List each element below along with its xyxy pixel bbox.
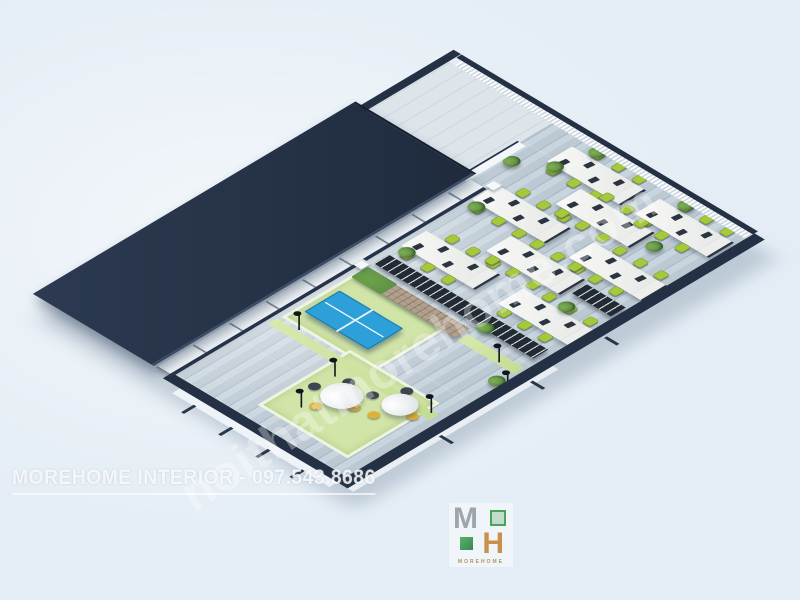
- floor-lamp-pole: [498, 347, 500, 362]
- logo-green-square-icon: [460, 537, 473, 550]
- floor-lamp-pole: [431, 398, 433, 413]
- bottom-watermark: MOREHOME INTERIOR - 097.543.8686: [12, 466, 376, 495]
- logo-letter-m: M: [453, 504, 478, 534]
- logo-letter-h: H: [482, 529, 504, 559]
- render-stage: noithatmorehome.com MOREHOME INTERIOR - …: [0, 0, 800, 600]
- morehome-logo: M H MOREHOME: [449, 503, 513, 567]
- floor-plan: [50, 62, 745, 477]
- logo-green-square-icon: [490, 510, 506, 526]
- floor-lamp-pole: [298, 315, 300, 330]
- logo-subtext: MOREHOME: [449, 560, 513, 565]
